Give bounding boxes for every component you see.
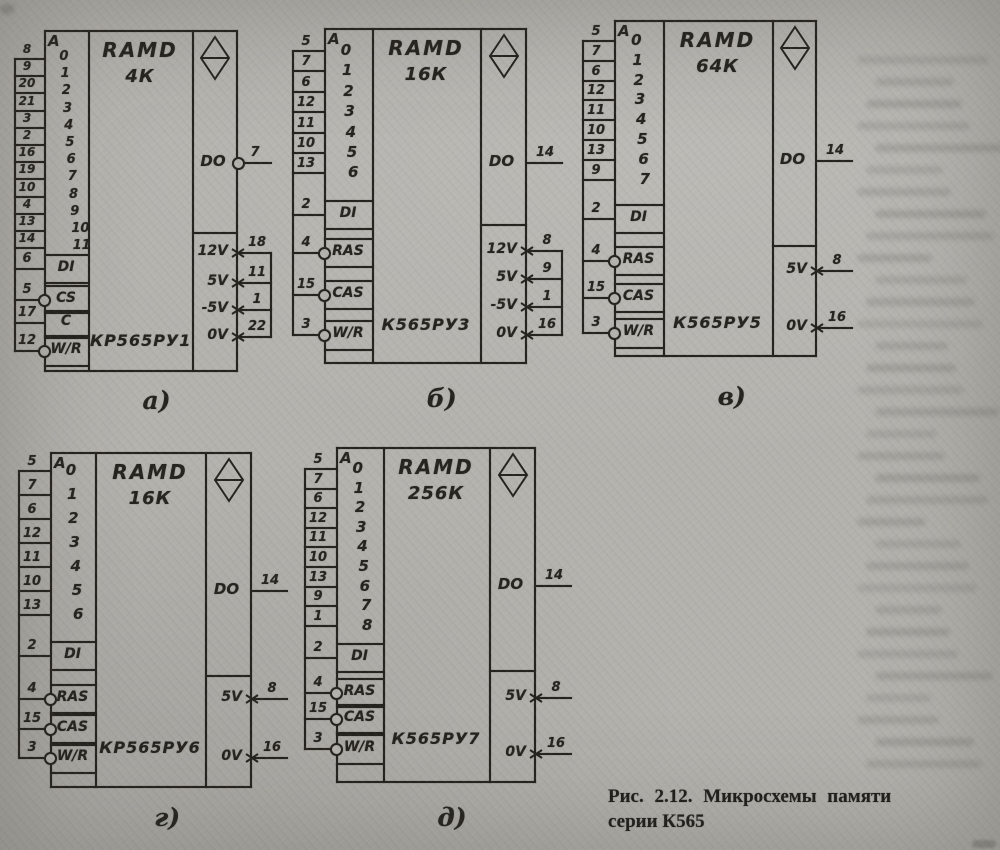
left-pin-ladder <box>304 468 306 750</box>
left-pin-ladder <box>582 40 584 334</box>
addr-digit: 1 <box>632 51 642 69</box>
addr-header: A <box>48 32 60 50</box>
control-pin-number: 4 <box>580 243 612 258</box>
addr-pin-number: 9 <box>580 163 612 178</box>
io-diamond-icon <box>213 457 245 503</box>
active-low-circle-icon <box>330 713 343 726</box>
bleedthrough-smudge <box>866 166 943 174</box>
left-column-divider <box>383 447 385 783</box>
chip-diagram-g: RAMD16ККР565РУ6A051726312411510613DI2RAS… <box>0 0 1000 850</box>
power-label: 5V <box>192 273 228 289</box>
addr-pin-stub <box>14 196 44 198</box>
control-cell-top <box>50 684 95 686</box>
chip-diagram-d: RAMD256КК565РУ7A0517263124115106137981DI… <box>0 0 1000 850</box>
addr-pin-stub <box>582 80 614 82</box>
addr-digit: 5 <box>358 557 368 575</box>
control-pin-number: 3 <box>290 317 322 332</box>
chip-part-number: КР565РУ6 <box>97 738 203 757</box>
addr-pin-stub <box>14 230 44 232</box>
addr-pin-number: 5 <box>16 454 48 469</box>
control-cell-top <box>44 337 88 339</box>
addr-pin-number: 13 <box>580 143 612 158</box>
chip-letter-label: в) <box>702 382 762 411</box>
chip-letter-label: г) <box>137 803 197 832</box>
left-pin-ladder <box>18 470 20 759</box>
addr-digit: 6 <box>73 605 83 623</box>
bleedthrough-smudge <box>866 760 982 768</box>
control-pin-number: 15 <box>16 711 48 726</box>
control-cell-top <box>324 320 372 322</box>
control-label: RAS <box>50 689 95 705</box>
chip-letter-label: а) <box>127 386 187 415</box>
power-cross-icon <box>520 272 534 286</box>
addr-pin-number: 10 <box>16 574 48 589</box>
active-low-circle-icon <box>44 723 57 736</box>
addr-pin-number: 3 <box>12 111 42 125</box>
power-pin-stub <box>817 327 853 329</box>
control-cell-bottom <box>336 671 383 673</box>
addr-digit: 0 <box>59 49 68 64</box>
control-cell-top <box>50 641 95 643</box>
do-pin-number: 14 <box>529 145 561 160</box>
control-cell-bottom <box>44 365 88 367</box>
power-label: 0V <box>772 318 807 334</box>
addr-pin-stub <box>304 527 336 529</box>
chip-part-number: К565РУ3 <box>374 315 478 334</box>
addr-pin-stub <box>14 144 44 146</box>
box-outline-left <box>336 447 338 783</box>
addr-pin-number: 13 <box>16 598 48 613</box>
power-pin-ladder <box>561 250 563 336</box>
box-outline-bottom <box>614 355 817 357</box>
addr-pin-number: 6 <box>290 75 322 90</box>
control-label: C <box>44 313 88 329</box>
chip-part-number: К565РУ7 <box>385 729 487 748</box>
control-label: RAS <box>324 243 372 259</box>
do-label: DO <box>480 152 523 170</box>
bleedthrough-smudge <box>875 210 986 218</box>
addr-pin-stub <box>292 91 324 93</box>
power-cross-icon <box>245 751 259 765</box>
power-pin-stub <box>527 278 563 280</box>
left-column-divider <box>95 452 97 788</box>
right-column-divider <box>205 452 207 788</box>
power-pin-number: 16 <box>821 310 853 325</box>
addr-digit: 2 <box>343 82 353 100</box>
addr-digit: 0 <box>341 41 351 59</box>
control-pin-number: 3 <box>580 315 612 330</box>
addr-pin-stub <box>292 70 324 72</box>
control-pin-stub <box>14 268 44 270</box>
right-column-divider <box>489 447 491 783</box>
control-cell-top <box>44 312 88 314</box>
power-pin-number: 8 <box>256 681 288 696</box>
control-cell-bottom <box>324 308 372 310</box>
control-label: DI <box>44 259 88 275</box>
do-pin-number: 7 <box>240 145 270 160</box>
active-low-circle-icon <box>44 693 57 706</box>
addr-pin-stub <box>304 586 336 588</box>
control-cell-top <box>324 200 372 202</box>
addr-digit: 0 <box>66 461 76 479</box>
control-pin-stub <box>14 322 44 324</box>
control-cell-bottom <box>324 349 372 351</box>
power-pin-number: 16 <box>256 740 288 755</box>
control-pin-number: 3 <box>302 731 334 746</box>
bleedthrough-smudge <box>857 716 939 724</box>
do-label: DO <box>489 575 532 593</box>
do-pin-stub <box>238 162 272 164</box>
control-cell-top <box>614 283 663 285</box>
addr-pin-stub <box>292 132 324 134</box>
power-label: -5V <box>480 297 517 313</box>
addr-pin-number: 13 <box>302 570 334 585</box>
power-cross-icon <box>520 328 534 342</box>
control-cell-bottom <box>50 712 95 714</box>
addr-pin-number: 20 <box>12 76 42 90</box>
left-pin-ladder <box>292 50 294 336</box>
power-label: 5V <box>205 689 242 705</box>
bleedthrough-smudge <box>866 232 994 240</box>
control-label: CAS <box>50 719 95 735</box>
control-cell-bottom <box>50 669 95 671</box>
addr-digit: 11 <box>73 238 91 253</box>
control-pin-number: 2 <box>580 201 612 216</box>
box-outline-bottom <box>336 781 536 783</box>
control-pin-stub <box>292 294 324 296</box>
bleedthrough-smudge <box>857 518 926 526</box>
do-pin-stub <box>527 162 563 164</box>
control-pin-stub <box>304 657 336 659</box>
addr-pin-stub <box>18 518 50 520</box>
control-label: W/R <box>50 748 95 764</box>
addr-digit: 6 <box>360 577 370 595</box>
control-cell-top <box>324 280 372 282</box>
do-pin-stub <box>536 585 572 587</box>
ram-title: RAMD <box>95 460 205 484</box>
addr-pin-number: 21 <box>12 94 42 108</box>
addr-pin-number: 11 <box>580 103 612 118</box>
addr-digit: 3 <box>69 533 79 551</box>
control-pin-stub <box>582 218 614 220</box>
addr-pin-number: 7 <box>16 478 48 493</box>
active-low-circle-icon <box>330 743 343 756</box>
control-cell-top <box>324 238 372 240</box>
io-diamond-icon <box>199 35 231 81</box>
ram-capacity: 4К <box>88 66 192 87</box>
bleedthrough-smudge <box>875 474 980 482</box>
addr-pin-stub <box>582 99 614 101</box>
addr-digit: 2 <box>355 498 365 516</box>
bleedthrough-smudge <box>857 584 977 592</box>
addr-header: A <box>54 454 66 472</box>
ram-title: RAMD <box>88 38 192 62</box>
active-low-circle-icon <box>608 327 621 340</box>
control-label: DI <box>50 646 95 662</box>
power-pin-stub <box>536 697 572 699</box>
power-pin-stub <box>527 250 563 252</box>
addr-pin-stub <box>14 92 44 94</box>
addr-pin-number: 6 <box>580 64 612 79</box>
bleedthrough-smudge <box>866 298 975 306</box>
right-column-divider <box>480 28 482 364</box>
io-diamond-icon <box>497 452 529 498</box>
power-pin-number: 16 <box>540 736 572 751</box>
power-pin-stub <box>817 270 853 272</box>
bleedthrough-smudge <box>875 540 961 548</box>
active-low-circle-icon <box>330 687 343 700</box>
do-pin-number: 14 <box>819 143 851 158</box>
control-pin-number: 15 <box>302 701 334 716</box>
control-cell-top <box>336 643 383 645</box>
addr-header: A <box>340 449 352 467</box>
power-cross-icon <box>245 692 259 706</box>
control-label: W/R <box>336 739 383 755</box>
do-label: DO <box>192 152 234 170</box>
control-label: CAS <box>336 709 383 725</box>
power-pin-number: 8 <box>821 253 853 268</box>
addr-digit: 10 <box>71 221 89 236</box>
addr-pin-stub <box>14 75 44 77</box>
box-outline-bottom <box>44 370 238 372</box>
addr-pin-number: 9 <box>302 589 334 604</box>
chip-diagram-a: RAMD4ККР565РУ1A0819220321435261671981094… <box>0 0 1000 850</box>
box-outline-bottom <box>50 786 252 788</box>
control-pin-stub <box>18 757 50 759</box>
power-separator <box>489 670 536 672</box>
addr-digit: 3 <box>356 518 366 536</box>
addr-pin-stub <box>304 605 336 607</box>
right-column-divider <box>772 20 774 357</box>
control-cell-top <box>614 318 663 320</box>
addr-pin-number: 10 <box>580 123 612 138</box>
chip-letter-label: б) <box>412 384 472 413</box>
control-cell-bottom <box>44 310 88 312</box>
control-cell-bottom <box>614 274 663 276</box>
addr-pin-number: 10 <box>12 180 42 194</box>
addr-pin-number: 19 <box>12 162 42 176</box>
control-pin-number: 4 <box>290 235 322 250</box>
addr-pin-stub <box>18 590 50 592</box>
power-cross-icon <box>529 747 543 761</box>
power-separator <box>192 232 238 234</box>
power-label: 5V <box>489 688 526 704</box>
addr-digit: 8 <box>69 187 78 202</box>
control-label: DI <box>614 209 663 225</box>
box-outline-left <box>44 30 46 372</box>
control-cell-top <box>336 678 383 680</box>
control-cell-top <box>44 285 88 287</box>
io-diamond-icon <box>779 25 811 71</box>
chip-part-number: К565РУ5 <box>665 313 770 332</box>
addr-pin-stub <box>582 40 614 42</box>
active-low-circle-icon <box>44 752 57 765</box>
addr-pin-number: 11 <box>16 550 48 565</box>
control-pin-stub <box>18 655 50 657</box>
control-cell-top <box>614 246 663 248</box>
addr-header: A <box>328 30 340 48</box>
do-label: DO <box>205 580 248 598</box>
power-cross-icon <box>231 330 245 344</box>
bleedthrough-smudge <box>866 496 988 504</box>
power-label: -5V <box>192 300 228 316</box>
addr-pin-number: 12 <box>302 511 334 526</box>
addr-digit: 3 <box>344 102 354 120</box>
bleedthrough-smudge <box>866 364 956 372</box>
do-label: DO <box>772 150 813 168</box>
control-pin-number: 15 <box>290 277 322 292</box>
power-pin-stub <box>238 252 272 254</box>
chip-letter-label: д) <box>422 803 482 832</box>
right-column-divider <box>192 30 194 372</box>
control-cell-bottom <box>614 232 663 234</box>
bleedthrough-smudge <box>866 562 969 570</box>
box-outline-top <box>336 447 536 449</box>
ram-title: RAMD <box>663 28 772 52</box>
control-label: RAS <box>336 683 383 699</box>
addr-digit: 1 <box>342 61 352 79</box>
power-cross-icon <box>520 300 534 314</box>
ram-capacity: 64К <box>663 56 772 77</box>
control-pin-stub <box>304 692 336 694</box>
ram-capacity: 16К <box>95 488 205 509</box>
do-pin-stub <box>252 590 288 592</box>
addr-digit: 2 <box>634 71 644 89</box>
addr-digit: 3 <box>63 101 72 116</box>
control-cell-bottom <box>336 704 383 706</box>
addr-pin-stub <box>582 119 614 121</box>
addr-pin-number: 1 <box>302 609 334 624</box>
addr-pin-stub <box>292 111 324 113</box>
addr-pin-number: 12 <box>16 526 48 541</box>
io-diamond-icon <box>488 33 520 79</box>
bleedthrough-smudge <box>875 78 954 86</box>
control-pin-stub <box>304 718 336 720</box>
control-label: DI <box>336 648 383 664</box>
addr-digit: 1 <box>67 485 77 503</box>
active-low-circle-icon <box>232 157 245 170</box>
control-cell-top <box>44 254 88 256</box>
page-corner-smudge <box>972 840 996 848</box>
addr-pin-stub <box>14 127 44 129</box>
power-pin-number: 1 <box>242 292 272 307</box>
addr-pin-stub <box>14 161 44 163</box>
control-pin-number: 2 <box>302 640 334 655</box>
control-cell-bottom <box>50 772 95 774</box>
active-low-circle-icon <box>318 247 331 260</box>
bleedthrough-smudge <box>857 650 958 658</box>
bleedthrough-smudge <box>875 276 967 284</box>
box-outline-top <box>44 30 238 32</box>
power-label: 5V <box>480 269 517 285</box>
bleedthrough-smudge <box>875 144 1000 152</box>
control-cell-top <box>50 714 95 716</box>
bleedthrough-smudge <box>875 606 942 614</box>
control-pin-stub <box>582 332 614 334</box>
addr-pin-stub <box>18 470 50 472</box>
addr-pin-stub <box>18 494 50 496</box>
power-separator <box>772 245 817 247</box>
addr-pin-number: 12 <box>290 95 322 110</box>
bleedthrough-smudge <box>875 672 993 680</box>
addr-pin-stub <box>304 507 336 509</box>
addr-pin-number: 5 <box>290 34 322 49</box>
addr-pin-stub <box>292 50 324 52</box>
addr-pin-stub <box>304 468 336 470</box>
control-pin-number: 2 <box>16 638 48 653</box>
power-pin-number: 16 <box>531 317 563 332</box>
addr-digit: 4 <box>71 557 81 575</box>
addr-digit: 7 <box>640 170 650 188</box>
addr-pin-number: 4 <box>12 197 42 211</box>
power-pin-stub <box>252 757 288 759</box>
figure-caption-line2: серии К565 <box>608 811 705 833</box>
addr-pin-number: 7 <box>580 44 612 59</box>
bleedthrough-smudge <box>857 122 970 130</box>
power-label: 12V <box>192 243 228 259</box>
addr-digit: 8 <box>362 616 372 634</box>
chip-diagram-v: RAMD64КК565РУ5A05172631241151061379DI2RA… <box>0 0 1000 850</box>
control-label: W/R <box>44 341 88 357</box>
power-pin-number: 9 <box>531 261 563 276</box>
control-cell-bottom <box>336 763 383 765</box>
control-pin-number: 15 <box>580 280 612 295</box>
bleedthrough-smudge <box>857 320 983 328</box>
bleedthrough-smudge <box>875 342 948 350</box>
power-cross-icon <box>810 321 824 335</box>
control-pin-number: 3 <box>16 740 48 755</box>
power-cross-icon <box>231 246 245 260</box>
addr-pin-number: 7 <box>290 54 322 69</box>
addr-pin-stub <box>14 247 44 249</box>
left-column-divider <box>372 28 374 364</box>
bleedthrough-smudge <box>875 738 974 746</box>
active-low-circle-icon <box>318 329 331 342</box>
control-label: CAS <box>614 288 663 304</box>
power-label: 0V <box>489 744 526 760</box>
box-outline-left <box>324 28 326 364</box>
control-pin-number: 5 <box>12 282 42 297</box>
active-low-circle-icon <box>38 294 51 307</box>
addr-pin-stub <box>582 60 614 62</box>
left-column-divider <box>663 20 665 357</box>
control-cell-bottom <box>44 335 88 337</box>
box-outline-right <box>525 28 527 364</box>
bleedthrough-smudge <box>857 56 989 64</box>
page-edge-smudge <box>0 4 14 14</box>
control-cell-bottom <box>324 228 372 230</box>
control-label: DI <box>324 205 372 221</box>
addr-pin-number: 9 <box>12 59 42 73</box>
addr-digit: 5 <box>72 581 82 599</box>
addr-pin-number: 13 <box>12 214 42 228</box>
addr-pin-stub <box>292 152 324 154</box>
addr-digit: 3 <box>635 90 645 108</box>
addr-pin-stub <box>14 213 44 215</box>
power-label: 5V <box>772 261 807 277</box>
power-separator <box>480 224 527 226</box>
addr-digit: 1 <box>61 66 70 81</box>
power-pin-stub <box>252 698 288 700</box>
box-outline-right <box>815 20 817 357</box>
power-pin-number: 8 <box>540 680 572 695</box>
addr-digit: 0 <box>352 459 362 477</box>
bleedthrough-smudge <box>866 100 962 108</box>
control-cell-top <box>614 204 663 206</box>
box-outline-right <box>534 447 536 783</box>
control-label: RAS <box>614 251 663 267</box>
addr-digit: 4 <box>357 537 367 555</box>
